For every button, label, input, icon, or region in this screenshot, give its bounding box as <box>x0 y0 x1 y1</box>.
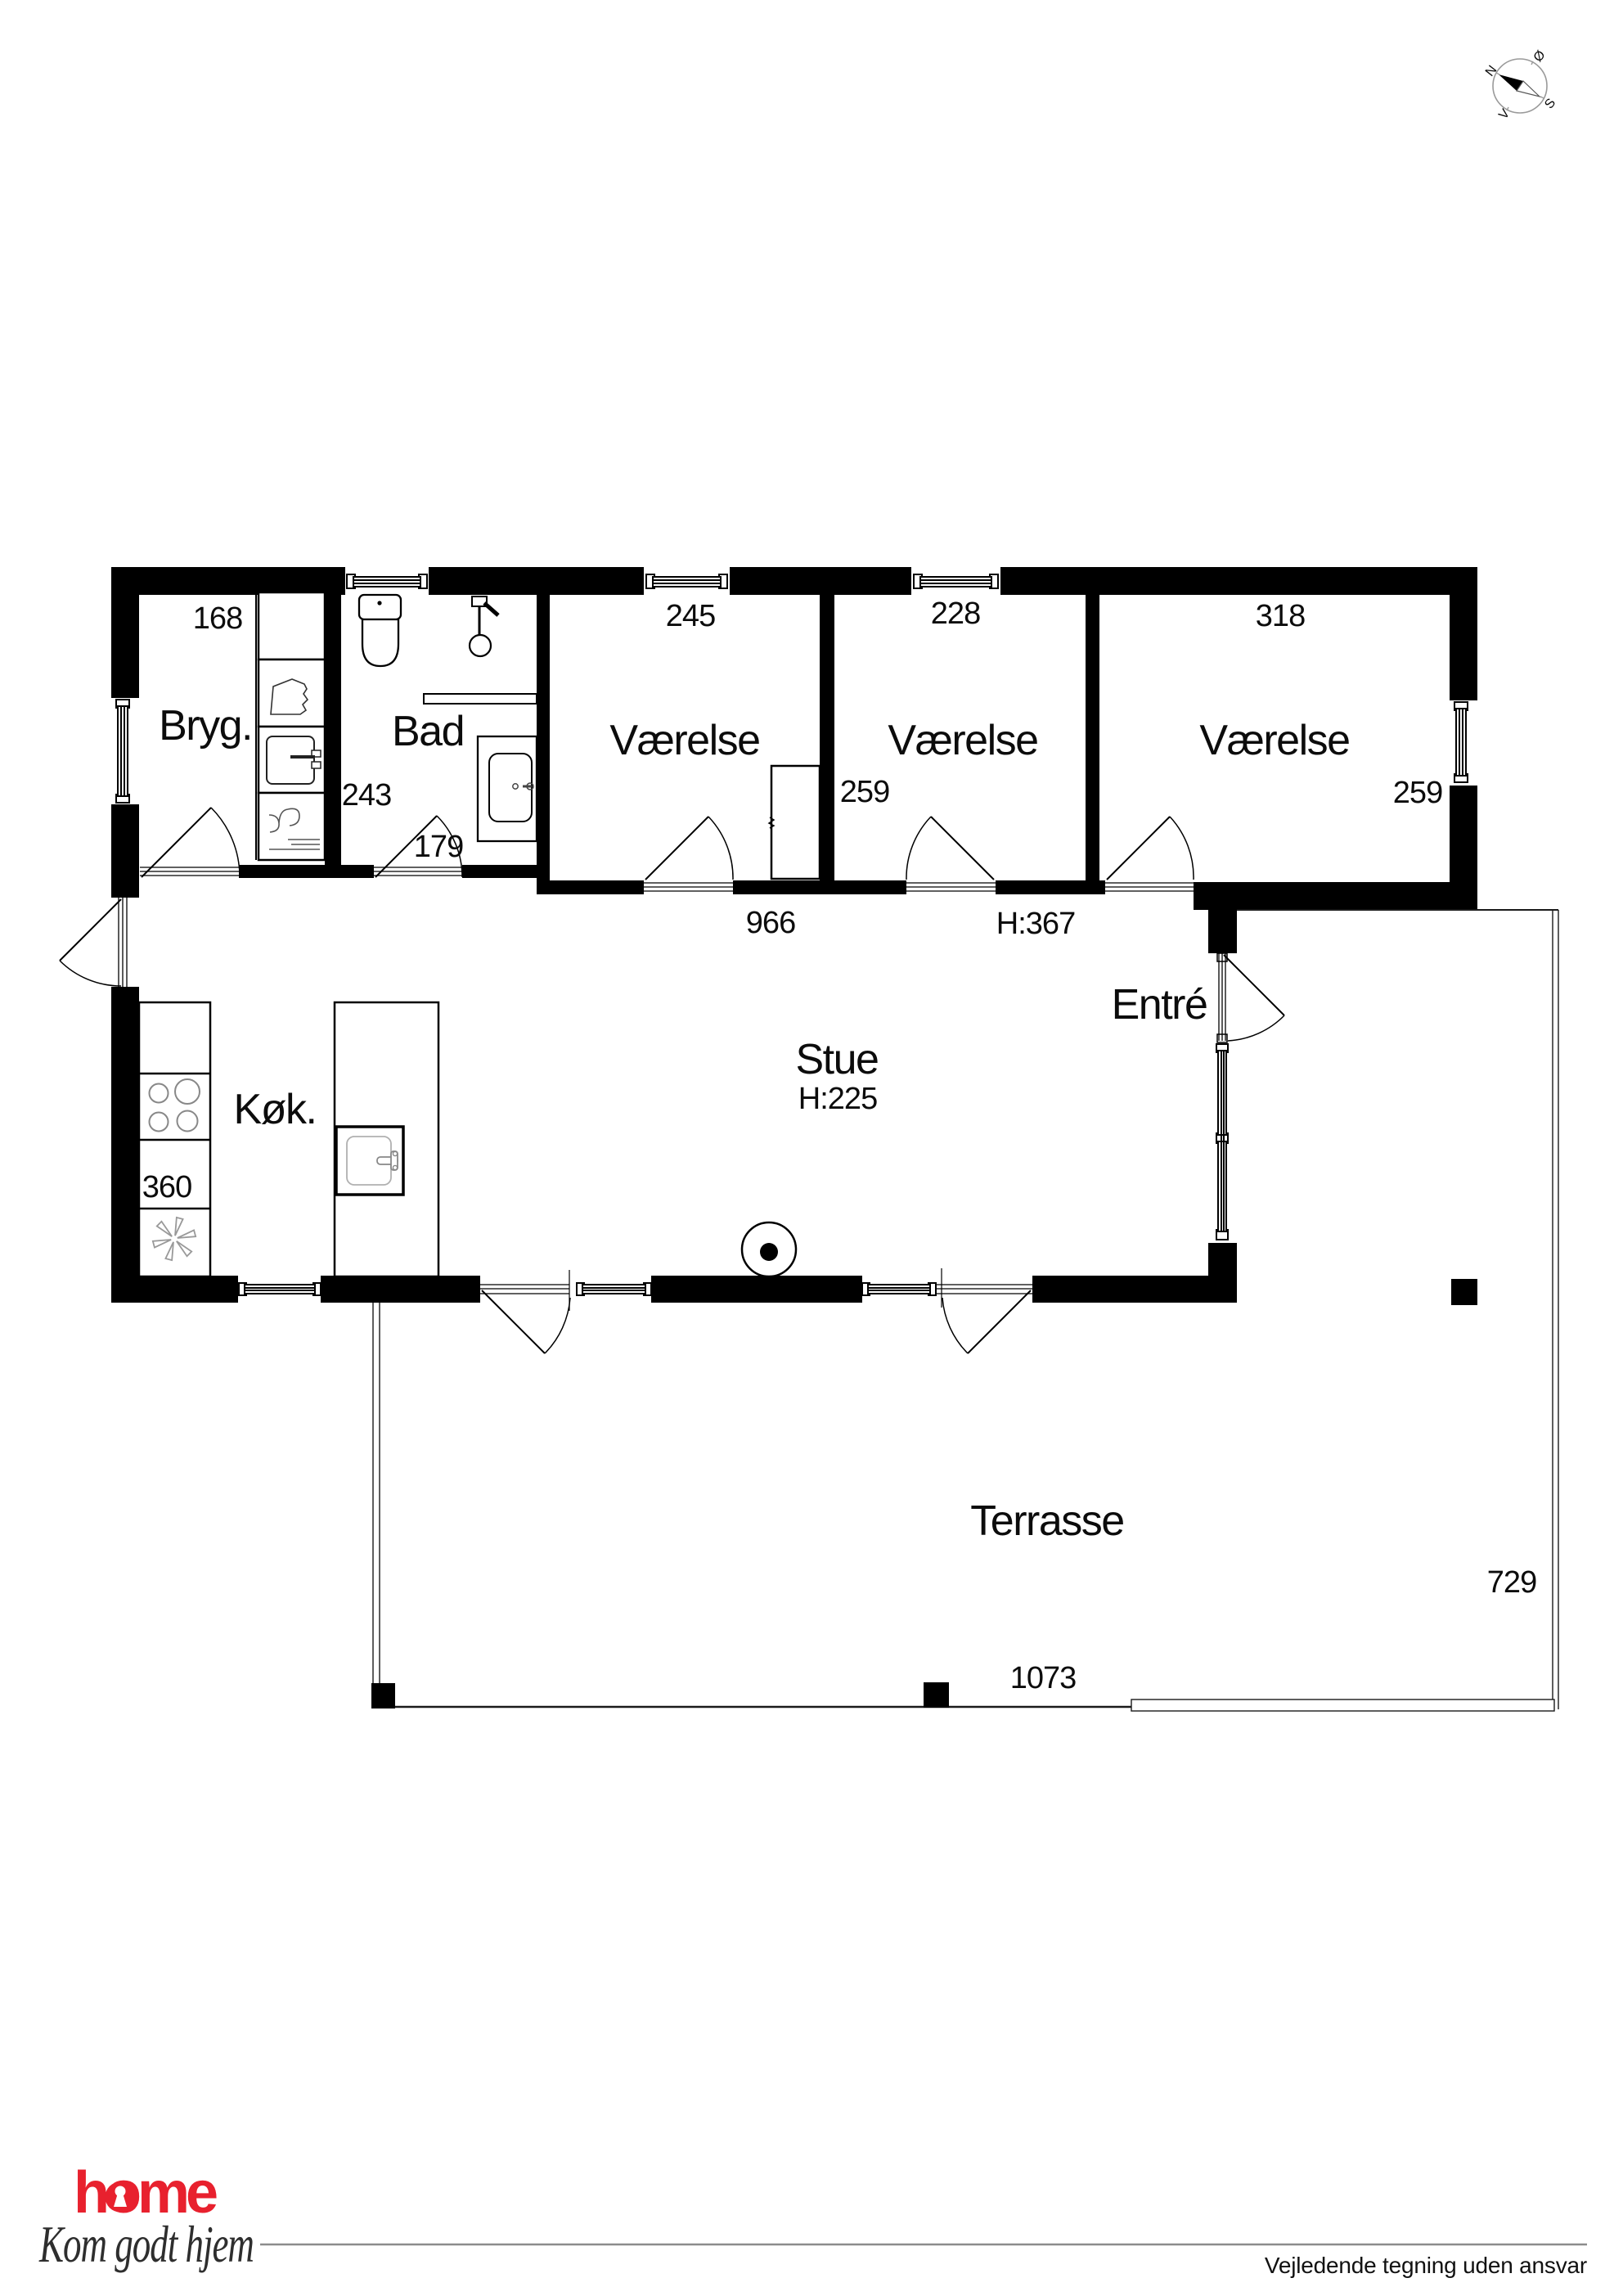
svg-text:Køk.: Køk. <box>234 1086 317 1133</box>
svg-text:1073: 1073 <box>1010 1661 1077 1695</box>
svg-text:Vejledende tegning uden ansvar: Vejledende tegning uden ansvar <box>1265 2253 1587 2278</box>
svg-text:Værelse: Værelse <box>609 717 759 764</box>
svg-text:318: 318 <box>1256 599 1305 633</box>
svg-text:259: 259 <box>840 775 889 809</box>
svg-text:228: 228 <box>931 597 980 631</box>
svg-text:Stue: Stue <box>796 1036 879 1083</box>
svg-text:Entré: Entré <box>1112 981 1207 1029</box>
svg-text:245: 245 <box>666 599 715 633</box>
svg-text:Terrasse: Terrasse <box>970 1497 1123 1545</box>
svg-text:243: 243 <box>342 778 391 813</box>
svg-text:Værelse: Værelse <box>888 717 1037 764</box>
svg-text:H:225: H:225 <box>798 1082 877 1116</box>
svg-text:966: 966 <box>746 906 795 940</box>
svg-text:Værelse: Værelse <box>1199 717 1349 764</box>
svg-text:Kom godt hjem: Kom godt hjem <box>38 2215 254 2273</box>
svg-text:H:367: H:367 <box>996 907 1075 941</box>
svg-text:729: 729 <box>1487 1565 1536 1600</box>
svg-text:179: 179 <box>414 830 463 864</box>
svg-text:Bad: Bad <box>392 708 464 755</box>
svg-text:360: 360 <box>142 1170 191 1204</box>
svg-text:Bryg.: Bryg. <box>159 702 252 750</box>
svg-text:168: 168 <box>193 601 242 636</box>
svg-text:259: 259 <box>1393 776 1442 810</box>
